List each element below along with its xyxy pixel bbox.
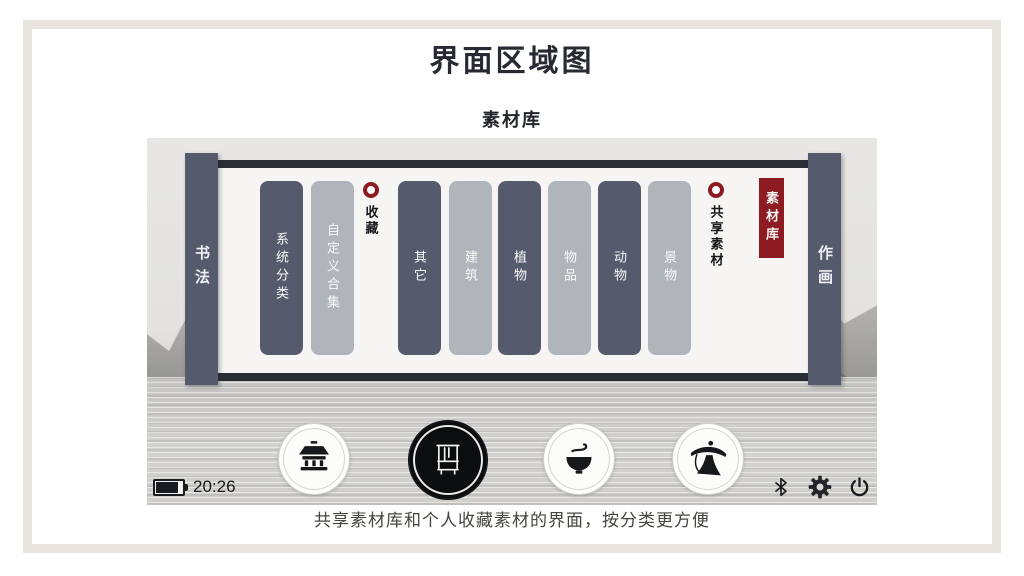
category-label: 其它 [410,250,429,286]
sidebar-painting[interactable]: 作画 [808,153,841,385]
category-label: 物品 [560,250,579,286]
scroll-rail-top [218,160,810,168]
favorites-marker-label: 收藏 [362,205,381,237]
sidebar-calligraphy[interactable]: 书法 [185,153,218,385]
sidebar-painting-label: 作画 [814,245,835,293]
status-left: 20:26 [153,477,236,497]
category-button-custom-collections[interactable]: 自定义合集 [311,181,354,355]
dock-button-material-library-active[interactable] [408,420,488,500]
category-button-animals[interactable]: 动物 [598,181,641,355]
category-button-other[interactable]: 其它 [398,181,441,355]
category-button-system[interactable]: 系统分类 [260,181,303,355]
dock-button-calligraphy-home[interactable] [278,423,350,495]
material-library-badge-label: 素材库 [762,191,781,245]
radio-ring-icon [363,182,379,198]
shared-materials-marker-label: 共享素材 [707,205,726,269]
shared-materials-marker[interactable]: 共享素材 [702,182,730,269]
water-surface [147,377,877,505]
battery-icon [153,479,185,496]
bluetooth-icon[interactable] [771,475,791,499]
category-label: 自定义合集 [323,223,342,313]
category-button-objects[interactable]: 物品 [548,181,591,355]
category-label: 系统分类 [272,232,291,304]
power-icon[interactable] [848,476,871,499]
scroll-rail-bottom [218,373,810,381]
radio-ring-icon [708,182,724,198]
caption-text: 共享素材库和个人收藏素材的界面，按分类更方便 [0,506,1024,531]
tea-bowl-icon [559,437,599,482]
device-screenshot: 书法 作画 系统分类 自定义合集 收藏 其它 建筑 植物 物品 动物 [147,138,877,505]
dock-button-painting[interactable] [672,423,744,495]
system-tray [771,474,871,500]
page-title: 界面区域图 [0,36,1024,80]
dock-button-tea[interactable] [543,423,615,495]
category-label: 动物 [610,250,629,286]
settings-gear-icon[interactable] [807,474,833,500]
material-library-badge[interactable]: 素材库 [759,178,784,258]
sidebar-calligraphy-label: 书法 [191,245,212,293]
favorites-marker[interactable]: 收藏 [357,182,385,237]
category-label: 建筑 [461,250,480,286]
fisherman-icon [686,435,730,484]
category-label: 景物 [660,250,679,286]
category-button-plants[interactable]: 植物 [498,181,541,355]
category-button-architecture[interactable]: 建筑 [449,181,492,355]
category-button-scenery[interactable]: 景物 [648,181,691,355]
page-root: 界面区域图 素材库 书法 作画 系统分类 自定义合集 收藏 其它 建筑 [0,0,1024,576]
brush-rack-icon [428,438,468,483]
section-label: 素材库 [0,106,1024,132]
category-label: 植物 [510,250,529,286]
clock-time: 20:26 [193,477,236,497]
temple-icon [294,437,334,482]
